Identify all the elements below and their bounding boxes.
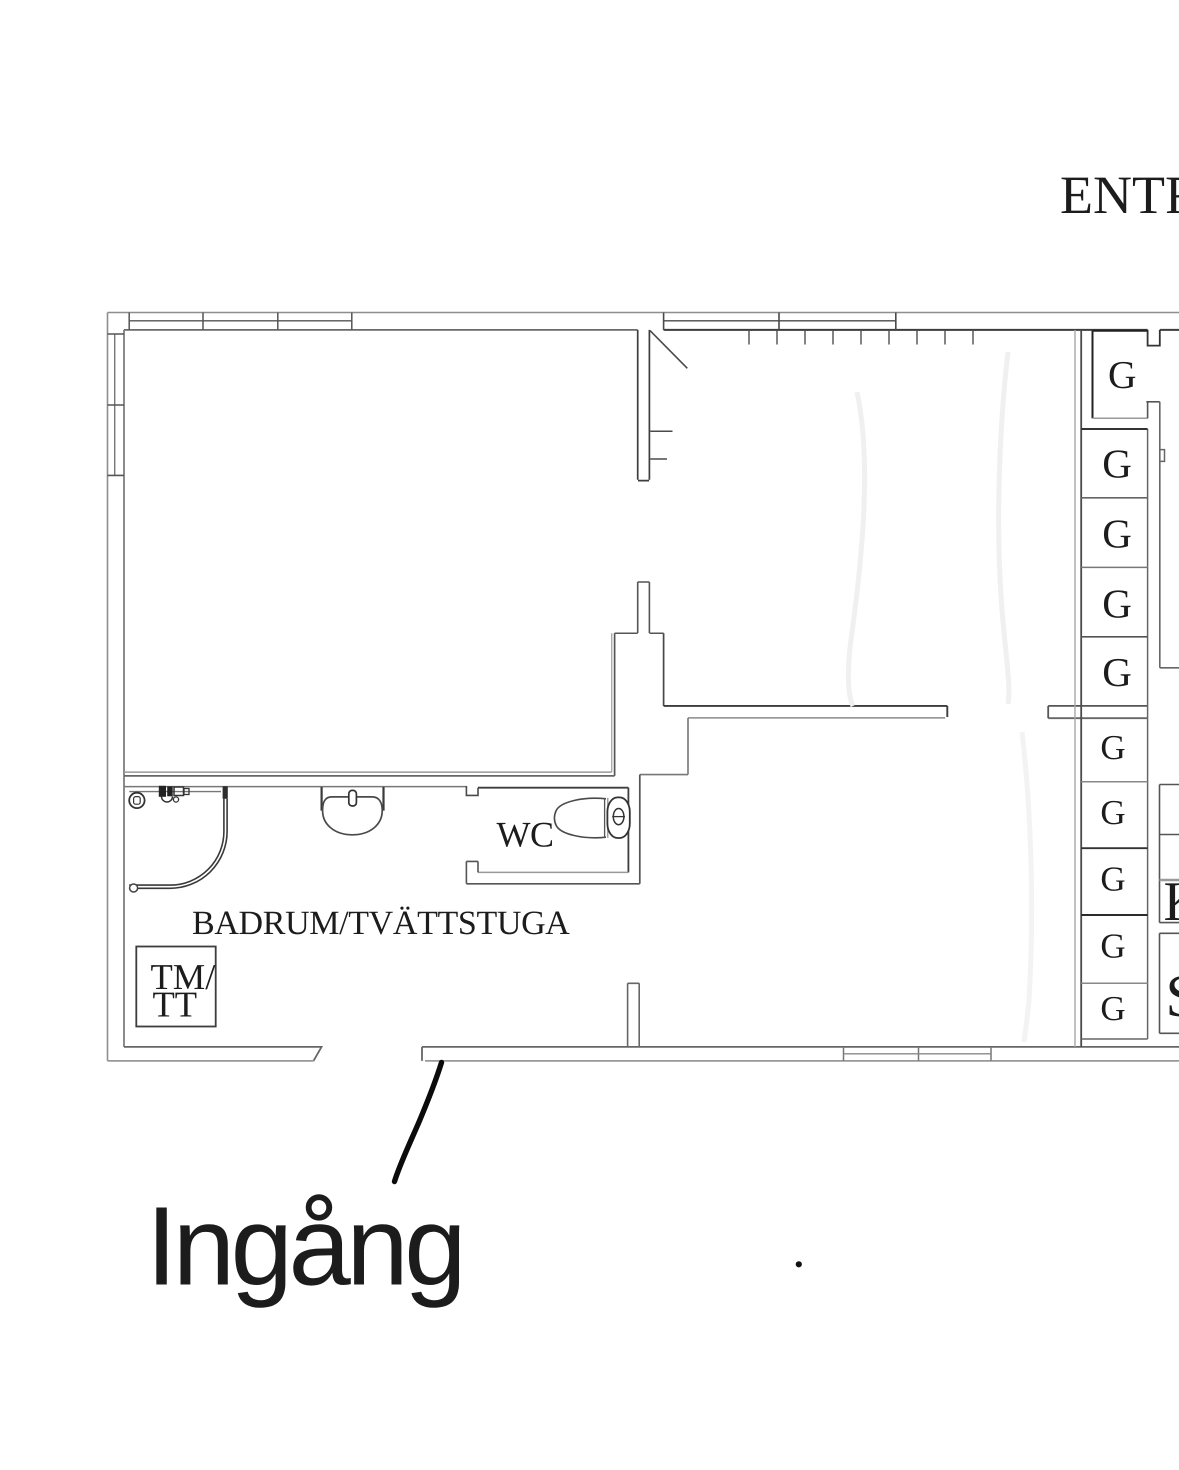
svg-text:S: S bbox=[1166, 963, 1179, 1029]
svg-text:G: G bbox=[1100, 728, 1125, 767]
svg-text:G: G bbox=[1102, 581, 1132, 627]
svg-text:G: G bbox=[1100, 793, 1125, 832]
svg-text:G: G bbox=[1108, 353, 1137, 397]
svg-text:ENTRÉ: ENTRÉ bbox=[1060, 165, 1179, 225]
svg-text:G: G bbox=[1100, 927, 1125, 966]
svg-text:G: G bbox=[1102, 511, 1132, 557]
svg-text:G: G bbox=[1102, 441, 1132, 487]
svg-text:K: K bbox=[1164, 871, 1179, 933]
svg-text:G: G bbox=[1102, 649, 1132, 695]
svg-text:WC: WC bbox=[497, 815, 554, 855]
svg-text:G: G bbox=[1100, 989, 1125, 1028]
svg-text:Ingång: Ingång bbox=[146, 1184, 462, 1309]
svg-text:G: G bbox=[1100, 860, 1125, 899]
svg-text:TT: TT bbox=[153, 984, 198, 1025]
svg-text:BADRUM/TVÄTTSTUGA: BADRUM/TVÄTTSTUGA bbox=[192, 905, 570, 942]
